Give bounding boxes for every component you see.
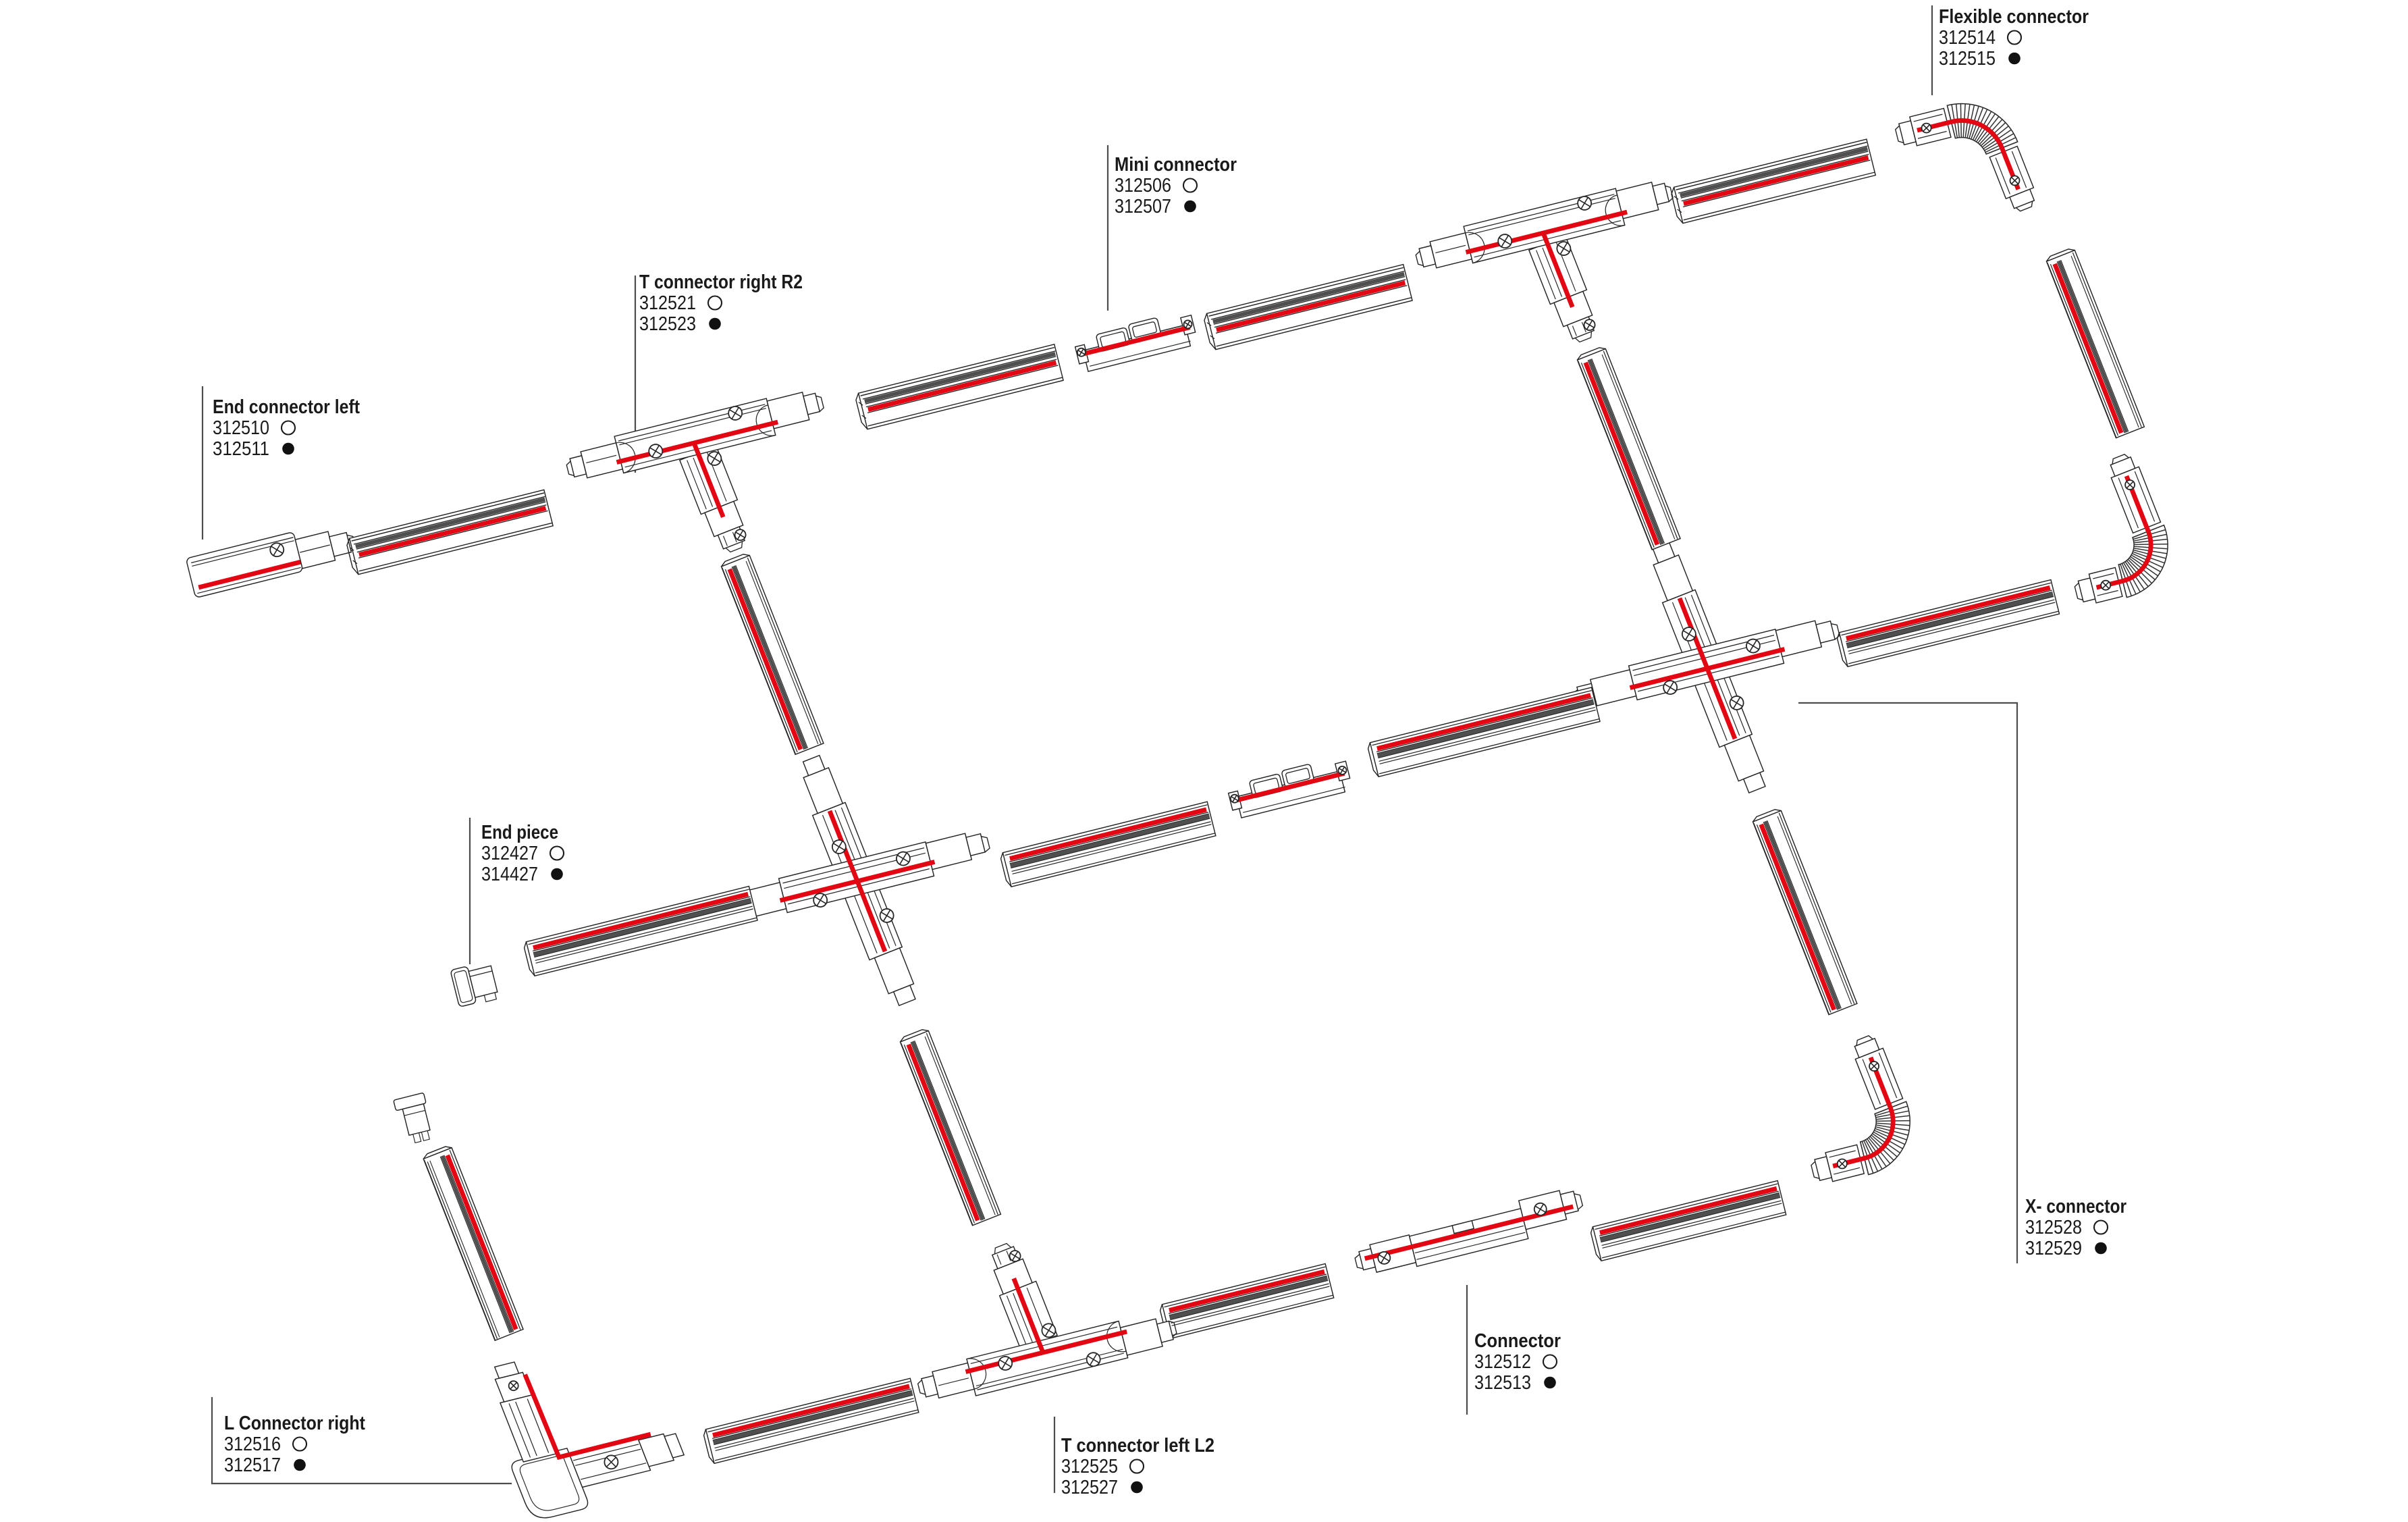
svg-text:312511: 312511 — [213, 438, 269, 460]
svg-text:312516: 312516 — [224, 1434, 281, 1455]
svg-text:L Connector right: L Connector right — [224, 1413, 365, 1434]
svg-text:Connector: Connector — [1474, 1330, 1561, 1352]
svg-text:312527: 312527 — [1061, 1477, 1118, 1498]
svg-text:312512: 312512 — [1474, 1351, 1531, 1373]
svg-text:End piece: End piece — [481, 822, 558, 843]
svg-text:312523: 312523 — [639, 313, 696, 335]
svg-text:312427: 312427 — [481, 843, 538, 864]
svg-text:Flexible connector: Flexible connector — [1939, 6, 2089, 28]
svg-text:312517: 312517 — [224, 1454, 281, 1476]
svg-text:312529: 312529 — [2025, 1238, 2082, 1259]
svg-text:Mini connector: Mini connector — [1115, 154, 1237, 176]
svg-text:T connector left L2: T connector left L2 — [1061, 1435, 1214, 1457]
svg-text:312506: 312506 — [1115, 175, 1171, 196]
svg-text:X- connector: X- connector — [2025, 1196, 2126, 1217]
svg-text:312507: 312507 — [1115, 196, 1171, 217]
svg-text:312513: 312513 — [1474, 1372, 1531, 1394]
svg-text:312525: 312525 — [1061, 1456, 1118, 1477]
svg-text:314427: 314427 — [481, 864, 538, 885]
svg-text:312528: 312528 — [2025, 1217, 2082, 1238]
svg-text:T connector right R2: T connector right R2 — [639, 271, 803, 293]
svg-text:312514: 312514 — [1939, 27, 1996, 49]
svg-text:End connector left: End connector left — [213, 396, 360, 418]
svg-text:312515: 312515 — [1939, 48, 1996, 70]
svg-text:312510: 312510 — [213, 417, 269, 439]
svg-text:312521: 312521 — [639, 292, 696, 314]
